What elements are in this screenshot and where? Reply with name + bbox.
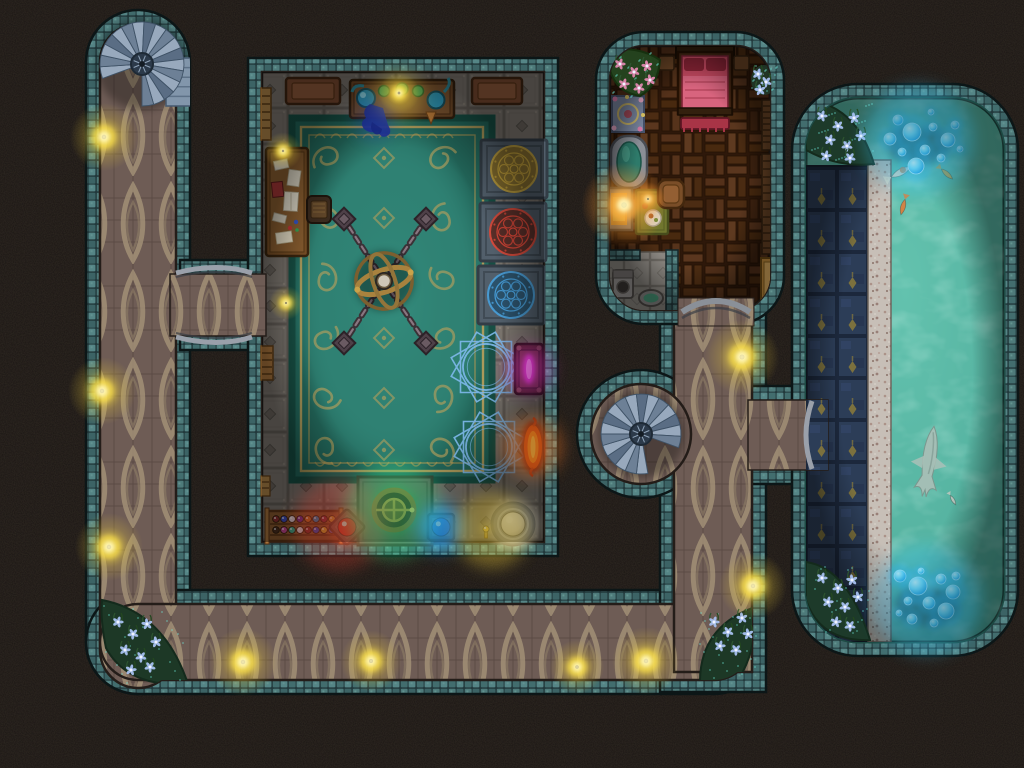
light-wash [454, 492, 530, 568]
torch-light [379, 73, 420, 114]
workshop-bridge[interactable] [170, 268, 266, 343]
torch-light [550, 640, 604, 694]
torch-light [719, 552, 787, 620]
light-wash [503, 417, 563, 477]
central-spiral-stair[interactable] [597, 390, 685, 478]
torch-light [631, 182, 665, 216]
torch-light [264, 132, 301, 169]
torch-light [209, 628, 277, 696]
torch-light [269, 286, 303, 320]
torch-light [340, 630, 401, 691]
pool-entrance[interactable] [748, 400, 828, 470]
map-canvas[interactable] [0, 0, 1024, 768]
light-wash [863, 85, 973, 195]
torch-light [705, 320, 780, 395]
light-wash [505, 345, 553, 393]
torch-light [612, 627, 680, 695]
torch-light [68, 357, 136, 425]
light-wash [871, 545, 981, 655]
torch-light [70, 103, 138, 171]
battle-map-stage[interactable] [0, 0, 1024, 768]
torch-light [75, 513, 143, 581]
